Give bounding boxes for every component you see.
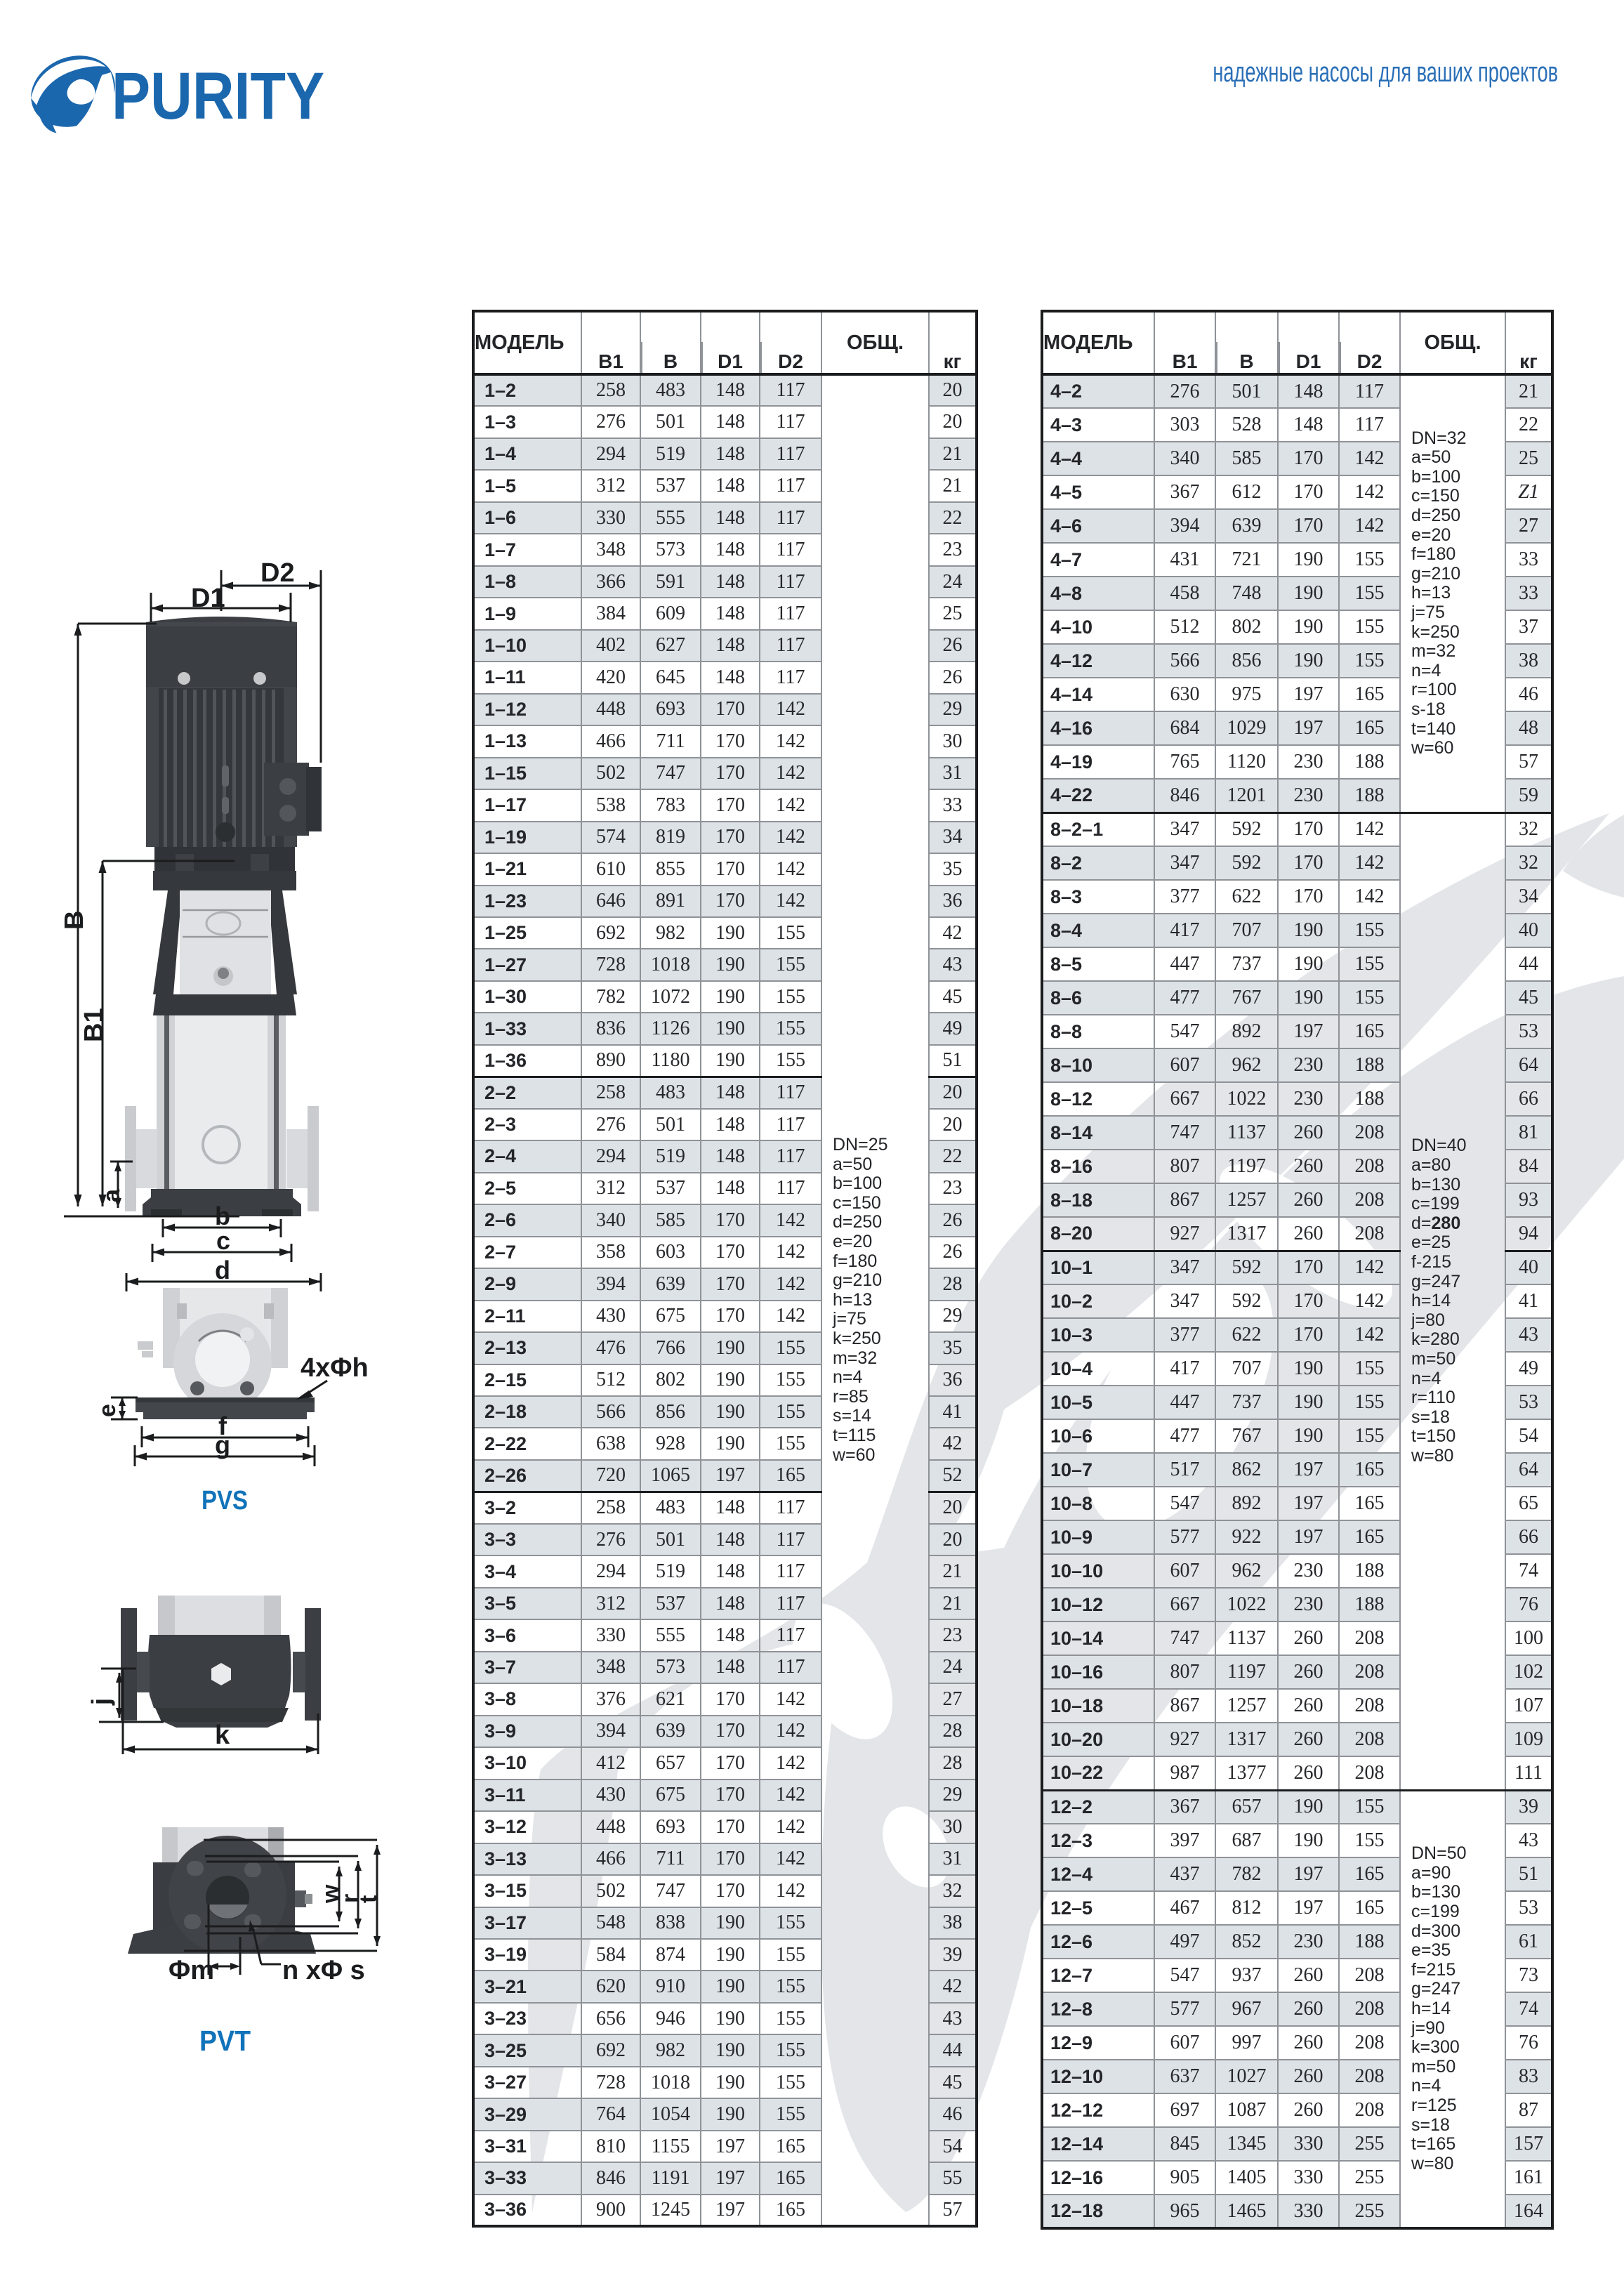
svg-text:PVS: PVS: [202, 1486, 248, 1515]
svg-text:D2: D2: [260, 558, 295, 588]
svg-text:B: B: [60, 911, 89, 930]
svg-text:g: g: [215, 1430, 230, 1459]
svg-text:t: t: [355, 1895, 382, 1903]
svg-text:d: d: [215, 1256, 230, 1284]
svg-text:c: c: [216, 1226, 230, 1255]
svg-text:4xΦh: 4xΦh: [301, 1353, 369, 1383]
svg-text:j: j: [86, 1698, 115, 1706]
svg-text:a: a: [98, 1188, 125, 1202]
svg-text:Φm: Φm: [169, 1956, 214, 1985]
svg-text:n xΦ s: n xΦ s: [282, 1956, 365, 1985]
svg-text:k: k: [215, 1721, 230, 1750]
svg-text:B1: B1: [79, 1008, 109, 1042]
svg-text:PVT: PVT: [199, 2025, 251, 2057]
svg-text:e: e: [94, 1404, 121, 1417]
